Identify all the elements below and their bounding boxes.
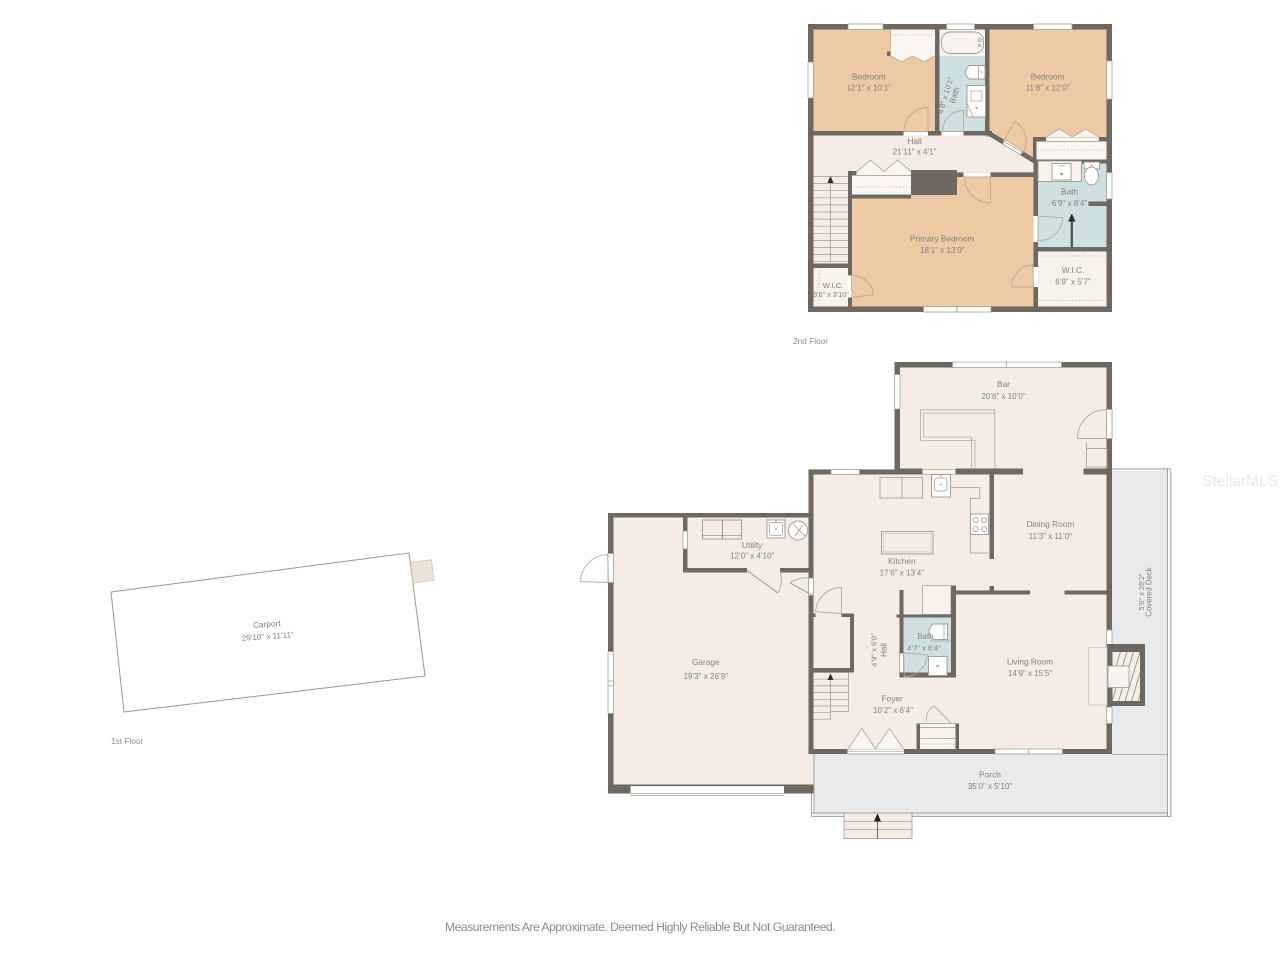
svg-text:Hall: Hall bbox=[907, 136, 921, 146]
svg-text:Dining Room: Dining Room bbox=[1026, 519, 1074, 529]
svg-text:Bedroom: Bedroom bbox=[852, 72, 886, 82]
svg-text:4’7" x 6’4": 4’7" x 6’4" bbox=[907, 644, 941, 653]
svg-text:3’6" x 3’10": 3’6" x 3’10" bbox=[813, 290, 849, 299]
svg-text:Garage: Garage bbox=[692, 657, 720, 667]
svg-text:35’0" x 5’10": 35’0" x 5’10" bbox=[968, 782, 1013, 791]
svg-text:21’11" x 4’1": 21’11" x 4’1" bbox=[893, 148, 937, 157]
svg-text:Living Room: Living Room bbox=[1007, 657, 1053, 667]
svg-text:Primary Bedroom: Primary Bedroom bbox=[910, 234, 975, 244]
svg-text:W.I.C.: W.I.C. bbox=[1062, 265, 1085, 275]
svg-text:Measurements Are Approximate.: Measurements Are Approximate. Deemed Hig… bbox=[445, 920, 835, 934]
svg-text:Bath: Bath bbox=[1061, 187, 1078, 197]
svg-text:Carport: Carport bbox=[253, 618, 282, 630]
svg-text:12’0" x 4’10": 12’0" x 4’10" bbox=[730, 552, 775, 561]
svg-text:Bar: Bar bbox=[997, 379, 1010, 389]
svg-text:6’9" x 8’4": 6’9" x 8’4" bbox=[1052, 199, 1088, 208]
svg-text:StellarMLS: StellarMLS bbox=[1202, 473, 1278, 490]
svg-text:Hall: Hall bbox=[880, 643, 889, 657]
svg-text:Bath: Bath bbox=[917, 632, 933, 641]
svg-text:W.I.C.: W.I.C. bbox=[823, 281, 844, 290]
svg-text:19’3" x 26’9": 19’3" x 26’9" bbox=[684, 672, 729, 681]
svg-text:Kitchen: Kitchen bbox=[888, 556, 916, 566]
svg-text:12’1" x 10’1": 12’1" x 10’1" bbox=[847, 84, 892, 93]
svg-text:20’6" x 10’0": 20’6" x 10’0" bbox=[981, 392, 1026, 401]
svg-text:6’9" x 5’7": 6’9" x 5’7" bbox=[1055, 278, 1091, 287]
svg-text:Porch: Porch bbox=[979, 770, 1001, 780]
svg-text:11’3" x 11’0": 11’3" x 11’0" bbox=[1029, 532, 1072, 541]
svg-text:11’8" x 12’0": 11’8" x 12’0" bbox=[1026, 84, 1070, 93]
svg-text:14’9" x 15’5": 14’9" x 15’5" bbox=[1008, 669, 1053, 678]
svg-text:Bedroom: Bedroom bbox=[1031, 72, 1065, 82]
svg-text:17’6" x 13’4": 17’6" x 13’4" bbox=[880, 569, 925, 578]
svg-text:Utility: Utility bbox=[742, 540, 763, 550]
svg-text:5’6" x 28’2": 5’6" x 28’2" bbox=[1137, 573, 1146, 610]
svg-text:18’1" x 13’0": 18’1" x 13’0" bbox=[920, 246, 965, 255]
svg-text:2nd Floor: 2nd Floor bbox=[793, 336, 828, 346]
svg-text:1st Floor: 1st Floor bbox=[111, 736, 144, 746]
svg-text:10’2" x 6’4": 10’2" x 6’4" bbox=[873, 706, 913, 715]
svg-text:4’9" x 6’8": 4’9" x 6’8" bbox=[870, 633, 879, 667]
svg-text:Foyer: Foyer bbox=[882, 694, 903, 704]
